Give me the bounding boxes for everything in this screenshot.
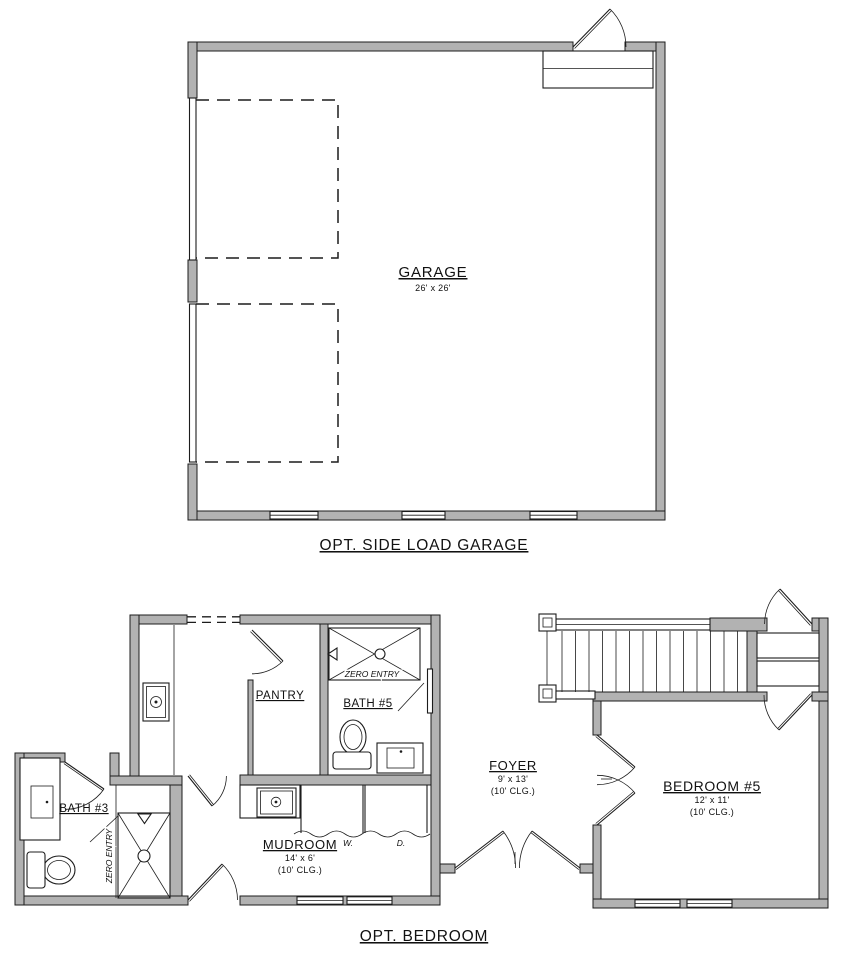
bedroom5-label: BEDROOM #5 — [663, 778, 761, 794]
foyer-ceiling: (10' CLG.) — [491, 786, 535, 796]
entry-exterior-door-swing — [765, 589, 812, 626]
stair-treads — [562, 631, 738, 692]
mudroom-building-walls — [15, 615, 440, 905]
bath5-vanity-sink — [377, 743, 423, 773]
utility-counter — [143, 625, 174, 775]
garage-windows — [270, 512, 577, 520]
bath3-zero-entry-label: ZERO ENTRY — [104, 827, 114, 884]
shower-head-icon — [138, 814, 151, 824]
garage-door-2 — [190, 304, 339, 462]
pantry-door-swing — [250, 630, 283, 674]
garage-plan: GARAGE 26' x 26' OPT. SIDE LOAD GARAGE — [188, 9, 665, 554]
bath5-toilet — [333, 720, 371, 769]
foyer-double-door-swing — [455, 831, 580, 870]
foyer-label: FOYER — [489, 758, 537, 773]
bedroom-plan-caption: OPT. BEDROOM — [360, 928, 488, 945]
mudroom-dims: 14' x 6' — [285, 853, 315, 863]
garage-walls — [188, 42, 665, 520]
mudroom-label: MUDROOM — [263, 837, 337, 852]
floor-plan-page: GARAGE 26' x 26' OPT. SIDE LOAD GARAGE — [0, 0, 861, 953]
bath5: ZERO ENTRY BATH #5 — [328, 628, 433, 773]
bath3-label: BATH #3 — [59, 803, 108, 815]
bedroom-double-door-swing — [596, 735, 635, 825]
garage-door-dashed-track — [196, 304, 338, 462]
entry-steps — [757, 633, 819, 686]
newel-post — [539, 614, 556, 631]
bath5-pocket-door — [398, 669, 433, 713]
shower-drain — [138, 850, 150, 862]
bath5-zero-entry-label: ZERO ENTRY — [344, 669, 401, 679]
mudroom-exterior-door-swing — [188, 864, 238, 901]
bath3-vanity-sink — [20, 758, 60, 840]
garage-door-dashed-track — [196, 100, 338, 258]
garage-door-1 — [190, 98, 339, 260]
bath3-toilet — [27, 852, 75, 888]
dryer — [365, 785, 427, 833]
stair-rail — [556, 691, 595, 699]
garage-entry-steps — [543, 51, 653, 88]
garage-caption: OPT. SIDE LOAD GARAGE — [320, 537, 529, 554]
bedroom-plan: PANTRY ZERO ENTRY BATH #5 — [15, 589, 828, 945]
washer-label: W. — [343, 838, 353, 848]
garage-entry-door-swing — [573, 9, 626, 49]
foyer-dims: 9' x 13' — [498, 774, 528, 784]
bedroom5-dims: 12' x 11' — [695, 795, 730, 805]
bath3-shower — [90, 785, 170, 898]
newel-post — [539, 685, 556, 702]
garage-room-label: GARAGE — [399, 264, 468, 281]
shower-drain — [375, 649, 385, 659]
floor-plan-drawing: GARAGE 26' x 26' OPT. SIDE LOAD GARAGE — [0, 0, 861, 953]
hall-door-swing — [188, 775, 226, 806]
pantry-label: PANTRY — [256, 690, 305, 702]
stairs — [539, 614, 738, 702]
entry-interior-door-swing — [764, 694, 812, 730]
bedroom5-ceiling: (10' CLG.) — [690, 807, 734, 817]
mudroom-counter — [240, 785, 300, 818]
garage-room-dims: 26' x 26' — [415, 283, 451, 293]
bath5-label: BATH #5 — [343, 698, 392, 710]
dryer-label: D. — [397, 838, 406, 848]
washer — [301, 785, 363, 833]
mudroom-ceiling: (10' CLG.) — [278, 865, 322, 875]
